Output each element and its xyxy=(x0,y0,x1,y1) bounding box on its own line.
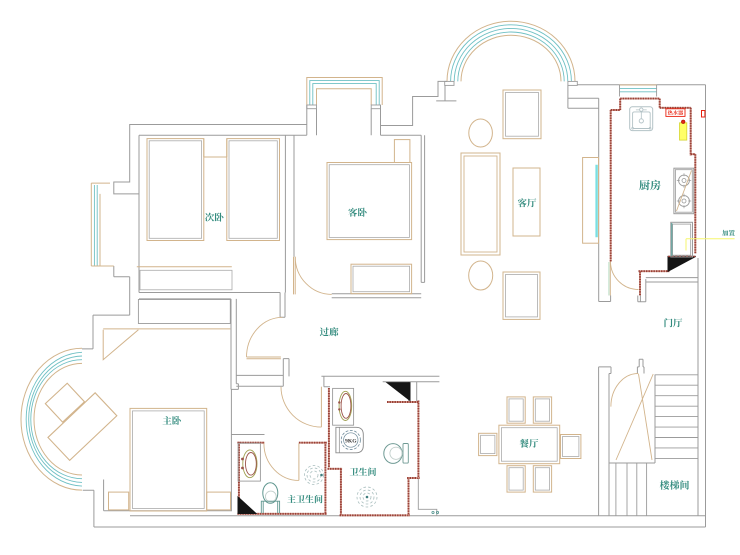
svg-text:9KG: 9KG xyxy=(345,438,357,444)
